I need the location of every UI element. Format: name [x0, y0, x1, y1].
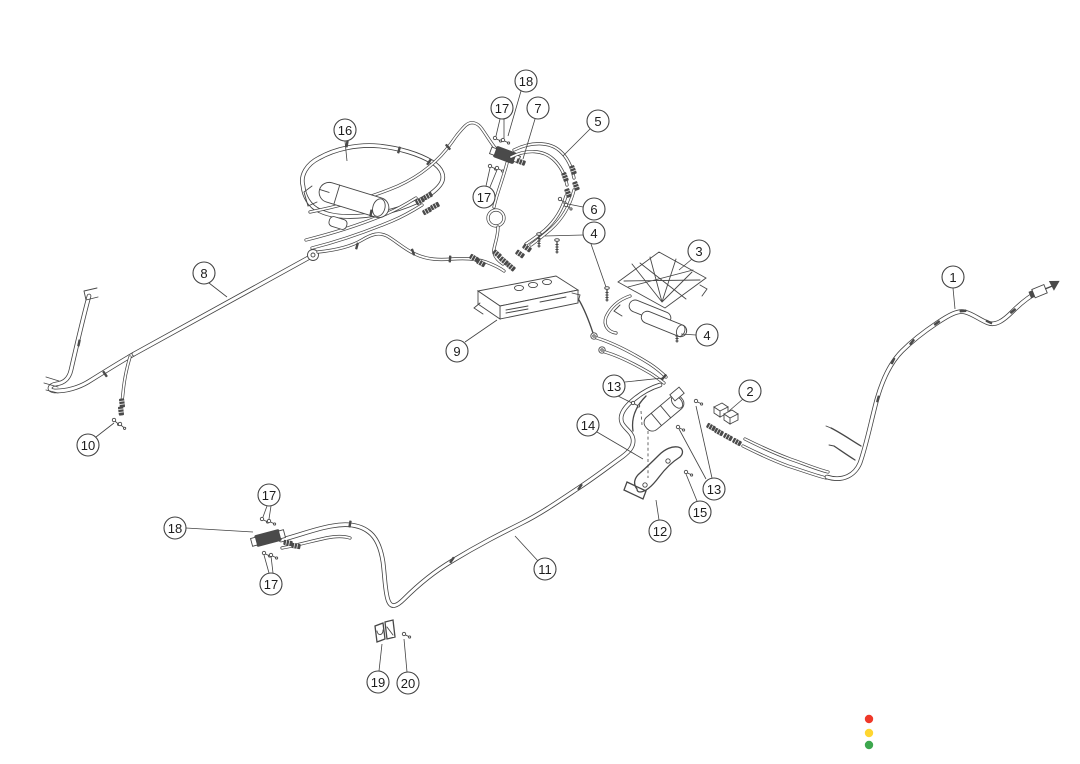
callout-17[interactable]: 17: [260, 555, 282, 595]
callout-number: 5: [594, 114, 601, 129]
callout-19[interactable]: 19: [367, 644, 389, 693]
callout-10[interactable]: 10: [77, 423, 114, 456]
part-19-20-drawing: [375, 620, 411, 642]
callout-leader-line: [686, 474, 697, 501]
callout-2[interactable]: 2: [729, 380, 761, 411]
callout-number: 18: [168, 521, 182, 536]
callout-number: 15: [693, 505, 707, 520]
callout-number: 17: [477, 190, 491, 205]
callout-leader-line: [404, 639, 407, 672]
callout-number: 17: [495, 101, 509, 116]
left-frame-tube-drawing: [44, 288, 134, 393]
callout-number: 17: [262, 488, 276, 503]
callout-leader-line: [679, 429, 706, 479]
callout-number: 12: [653, 524, 667, 539]
callout-1[interactable]: 1: [942, 266, 964, 309]
callout-leader-line: [729, 399, 743, 411]
callout-leader-line: [597, 432, 643, 459]
callout-leader-line: [618, 396, 632, 403]
callout-leader-line: [490, 170, 497, 187]
callout-number: 3: [695, 244, 702, 259]
indicator-dot-yellow[interactable]: [865, 729, 873, 737]
callout-leader-line: [263, 506, 267, 517]
callout-number: 16: [338, 123, 352, 138]
callout-number: 14: [581, 418, 595, 433]
callout-number: 19: [371, 675, 385, 690]
callout-leader-line: [625, 378, 663, 382]
callout-16[interactable]: 16: [334, 119, 356, 161]
callout-9[interactable]: 9: [446, 320, 497, 362]
callout-18[interactable]: 18: [164, 517, 253, 539]
part-16-assembly-drawing: [302, 123, 496, 248]
callout-leader-line: [379, 644, 382, 671]
callout-17[interactable]: 17: [491, 97, 513, 138]
callout-number: 20: [401, 676, 415, 691]
callout-leader-line: [953, 288, 955, 309]
part-8-tube-drawing: [134, 250, 319, 355]
callout-leader-line: [563, 129, 590, 156]
callout-leader-line: [186, 528, 253, 532]
callout-number: 9: [453, 344, 460, 359]
callout-4[interactable]: 4: [681, 324, 718, 346]
callout-17[interactable]: 17: [258, 484, 280, 519]
callout-number: 4: [703, 328, 710, 343]
callout-leader-line: [545, 235, 583, 236]
callout-leader-line: [264, 555, 269, 573]
callout-number: 18: [519, 74, 533, 89]
callout-number: 7: [534, 101, 541, 116]
parts-diagram-canvas: 1234456789101112131314151617171717181819…: [0, 0, 1080, 764]
callout-number: 1: [949, 270, 956, 285]
callout-leader-line: [656, 500, 659, 520]
parts-diagram: 1234456789101112131314151617171717181819…: [0, 0, 1080, 764]
indicator-dot-green[interactable]: [865, 741, 873, 749]
callout-number: 2: [746, 384, 753, 399]
callout-number: 10: [81, 438, 95, 453]
callout-8[interactable]: 8: [193, 262, 227, 297]
indicator-dot-red[interactable]: [865, 715, 873, 723]
pump-assembly-drawing: [624, 374, 828, 499]
callout-11[interactable]: 11: [515, 536, 556, 580]
callout-20[interactable]: 20: [397, 639, 419, 694]
callout-leader-line: [515, 536, 538, 561]
callout-12[interactable]: 12: [649, 500, 671, 542]
callout-leader-line: [696, 406, 712, 478]
callout-leader-line: [591, 244, 606, 287]
callout-number: 17: [264, 577, 278, 592]
loop-tube-drawing: [469, 163, 516, 272]
callout-number: 6: [590, 202, 597, 217]
callout-leader-line: [486, 168, 490, 186]
part-1-hose-drawing: [826, 277, 1062, 478]
callout-17[interactable]: 17: [473, 168, 497, 208]
callout-13[interactable]: 13: [679, 406, 725, 500]
callout-leader-line: [465, 320, 497, 342]
callout-7[interactable]: 7: [523, 97, 549, 159]
callout-number: 13: [607, 379, 621, 394]
callout-number: 11: [538, 562, 552, 577]
callout-number: 13: [707, 482, 721, 497]
callout-5[interactable]: 5: [563, 110, 609, 156]
tube-11-drawing: [281, 385, 660, 606]
callout-6[interactable]: 6: [568, 198, 605, 220]
callout-leader-line: [96, 423, 114, 437]
callout-leader-line: [269, 506, 271, 519]
callout-leader-line: [496, 119, 500, 136]
callout-leader-line: [271, 556, 273, 573]
callout-number: 8: [200, 266, 207, 281]
callout-number: 4: [590, 226, 597, 241]
indicator-dots: [865, 715, 873, 749]
callout-leader-line: [209, 283, 227, 297]
part-3-assembly-drawing: [605, 252, 707, 339]
